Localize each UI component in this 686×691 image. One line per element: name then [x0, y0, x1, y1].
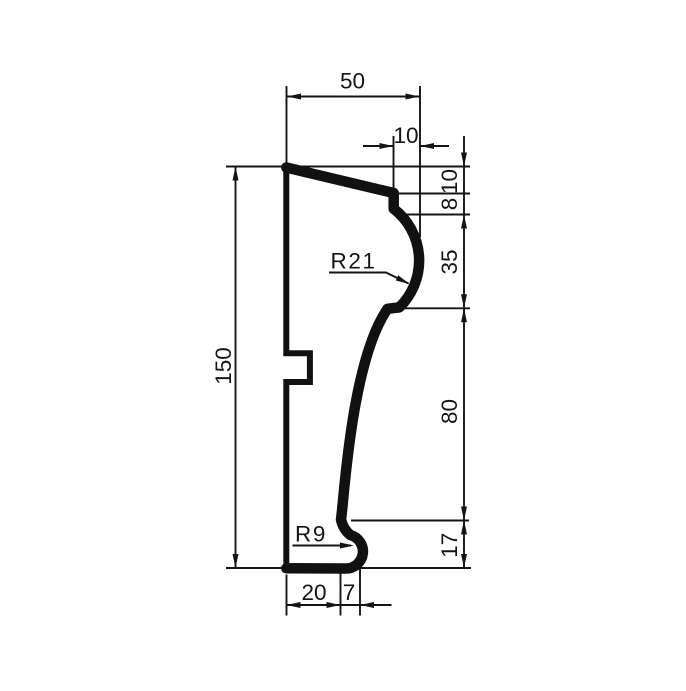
svg-text:150: 150 [211, 347, 236, 385]
svg-text:10: 10 [393, 123, 418, 148]
svg-text:7: 7 [343, 580, 356, 605]
svg-text:10: 10 [437, 169, 462, 194]
svg-text:R21: R21 [331, 249, 377, 274]
svg-text:17: 17 [437, 533, 462, 558]
svg-text:R9: R9 [295, 522, 327, 547]
svg-text:50: 50 [340, 69, 365, 94]
svg-text:20: 20 [301, 580, 326, 605]
svg-text:35: 35 [437, 249, 462, 274]
svg-text:80: 80 [437, 399, 462, 424]
svg-text:8: 8 [437, 198, 462, 211]
